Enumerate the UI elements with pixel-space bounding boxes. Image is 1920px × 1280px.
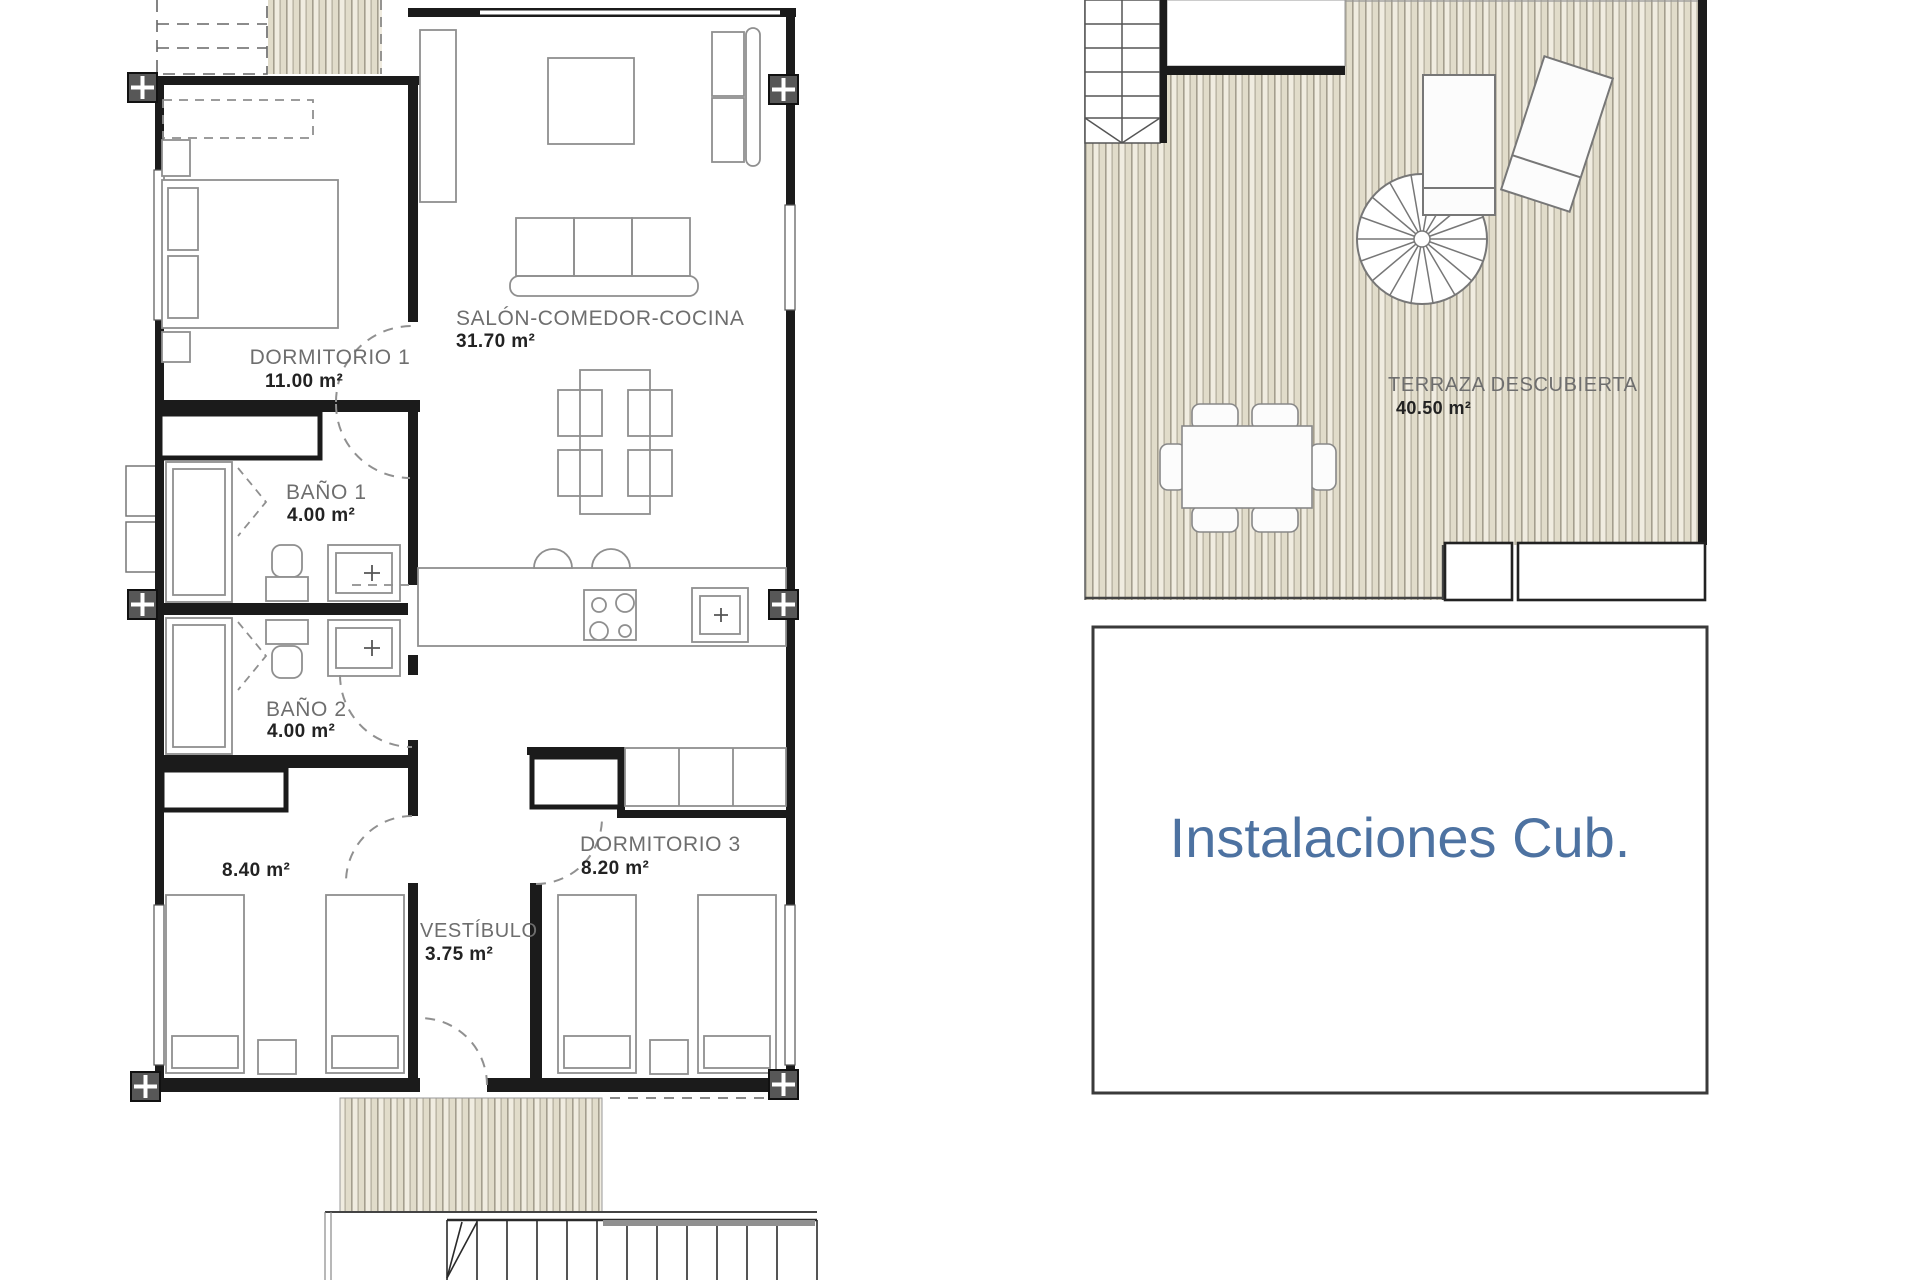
tv-unit	[420, 30, 456, 202]
door-bano1	[336, 404, 410, 478]
sink-bowl	[592, 549, 630, 568]
pillow	[172, 1036, 238, 1068]
dormitorio1-furniture	[162, 100, 338, 362]
room-area-bano2: 4.00 m²	[267, 721, 335, 743]
room-area-bano1: 4.00 m²	[287, 505, 355, 527]
room-label-salon: SALÓN-COMEDOR-COCINA	[456, 307, 745, 331]
instalaciones-label: Instalaciones Cub.	[1170, 805, 1631, 870]
column-marker	[769, 590, 798, 619]
chair	[1192, 506, 1238, 532]
room-label-bano1: BAÑO 1	[286, 481, 367, 505]
column-marker	[128, 73, 157, 102]
column-marker	[769, 75, 798, 104]
room-label-dormitorio1: DORMITORIO 1	[214, 346, 446, 370]
pillow	[564, 1036, 630, 1068]
room-area-vestibulo: 3.75 m²	[425, 944, 493, 966]
room-area-dormitorio2: 8.40 m²	[222, 860, 290, 882]
sofa-cushion	[516, 218, 574, 276]
room-area-salon: 31.70 m²	[456, 331, 535, 353]
toilet	[272, 545, 302, 577]
room-area-dormitorio1: 11.00 m²	[265, 371, 343, 393]
exterior-stairs	[447, 1220, 817, 1280]
room-area-terraza: 40.50 m²	[1396, 398, 1471, 419]
room-label-dormitorio3: DORMITORIO 3	[580, 833, 741, 857]
light-shafts	[126, 466, 156, 572]
nightstand	[258, 1040, 296, 1074]
dormitorio3-furniture	[558, 895, 776, 1074]
instalaciones-box: Instalaciones Cub.	[1093, 627, 1707, 1093]
chair	[1252, 506, 1298, 532]
column-marker	[769, 1070, 798, 1099]
pillow	[332, 1036, 398, 1068]
pillow	[168, 188, 198, 250]
square-table	[548, 58, 634, 144]
room-label-vestibulo: VESTÍBULO	[420, 920, 538, 943]
pillow	[704, 1036, 770, 1068]
room-label-terraza: TERRAZA DESCUBIERTA	[1388, 374, 1638, 397]
sofa2-back	[746, 28, 760, 166]
door-dormitorio2	[346, 816, 412, 883]
sofa2-cushion	[712, 32, 744, 96]
door-entry	[420, 1018, 487, 1085]
door-bano2	[340, 675, 412, 747]
dining-table	[580, 370, 650, 514]
terrace-deck	[1085, 0, 1707, 600]
entry-porch-deck	[325, 1098, 817, 1280]
sofa2-cushion	[712, 98, 744, 162]
dorm3-closet	[625, 748, 786, 806]
salon-furniture	[420, 28, 760, 514]
shower-door	[238, 622, 266, 690]
top-deck	[268, 0, 382, 74]
sofa-cushion	[632, 218, 690, 276]
floor-plan: DORMITORIO 1 11.00 m² SALÓN-COMEDOR-COCI…	[0, 0, 1920, 1280]
sink-bowl	[534, 549, 572, 568]
terrace-right-wall	[1698, 0, 1707, 545]
sofa-back	[510, 276, 698, 296]
pillow	[168, 256, 198, 318]
chair	[1310, 444, 1336, 490]
sun-lounger	[1423, 75, 1495, 215]
table	[1182, 426, 1312, 508]
terrace-planters	[1445, 543, 1705, 600]
room-area-dormitorio3: 8.20 m²	[581, 858, 649, 880]
column-marker	[131, 1072, 160, 1101]
room-label-bano2: BAÑO 2	[266, 698, 347, 722]
toilet	[272, 646, 302, 678]
dormitorio2-furniture	[166, 895, 404, 1074]
sofa-cushion	[574, 218, 632, 276]
pergola-dashed-area	[157, 0, 267, 74]
column-marker	[128, 590, 157, 619]
shower-door	[238, 468, 266, 536]
nightstand	[650, 1040, 688, 1074]
terrace-access-stairs	[1085, 0, 1160, 143]
